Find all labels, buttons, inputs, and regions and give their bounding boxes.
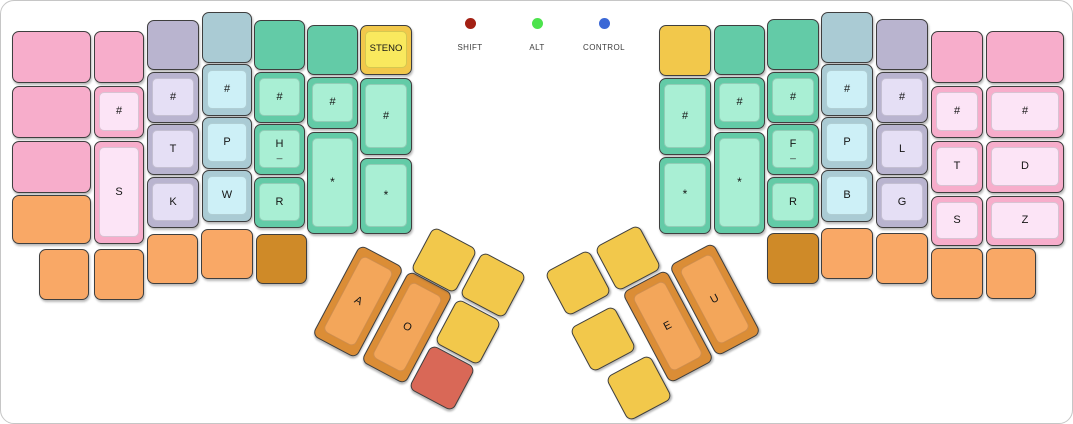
key-label: R <box>789 196 797 208</box>
key-blank-lavender[interactable] <box>876 19 928 70</box>
key-hash[interactable]: # <box>202 64 252 116</box>
key-blank-pink[interactable] <box>931 31 983 83</box>
alt-indicator-label: ALT <box>529 43 544 52</box>
key-blank-pink[interactable] <box>12 141 91 193</box>
key-blank-green[interactable] <box>714 25 765 75</box>
key-sublabel: _ <box>790 150 796 160</box>
key-label: # <box>116 105 122 117</box>
key-blank-pink[interactable] <box>986 31 1064 83</box>
key-hash[interactable]: # <box>94 86 144 138</box>
key-star[interactable]: * <box>659 157 711 234</box>
key-hash[interactable]: # <box>821 64 873 116</box>
key-w[interactable]: W <box>202 170 252 222</box>
key-p[interactable]: P <box>821 117 873 169</box>
indicator-control: CONTROL <box>564 18 644 52</box>
key-star[interactable]: * <box>307 132 358 234</box>
keymap-board: #S#TK#PW#H_R#*STENO#*AOEU#*#*#F_R#PB#LG#… <box>0 0 1073 424</box>
key-blank-darkorange[interactable] <box>256 234 307 284</box>
key-blank-pink[interactable] <box>12 31 91 83</box>
key-blank-blue[interactable] <box>821 12 873 63</box>
key-r[interactable]: R <box>767 177 819 228</box>
key-hash[interactable]: # <box>360 78 412 155</box>
key-star[interactable]: * <box>714 132 765 234</box>
key-hash[interactable]: # <box>714 77 765 129</box>
key-label: # <box>276 91 282 103</box>
key-blank-orange[interactable] <box>201 229 253 279</box>
key-blank-orange[interactable] <box>94 249 144 300</box>
key-label: R <box>276 196 284 208</box>
key-blank-green[interactable] <box>307 25 358 75</box>
key-label: * <box>683 188 688 201</box>
key-t[interactable]: T <box>147 124 199 175</box>
key-label: K <box>169 196 176 208</box>
key-d[interactable]: D <box>986 141 1064 193</box>
key-t[interactable]: T <box>931 141 983 193</box>
key-label: # <box>224 83 230 95</box>
key-label: G <box>898 196 907 208</box>
key-label: W <box>222 189 232 201</box>
key-label: E <box>662 319 674 333</box>
key-blank-orange[interactable] <box>39 249 89 300</box>
key-hash[interactable]: # <box>147 72 199 123</box>
key-r[interactable]: R <box>254 177 305 228</box>
key-sublabel: _ <box>277 150 283 160</box>
key-label: D <box>1021 160 1029 172</box>
key-label: # <box>899 91 905 103</box>
key-blank-green[interactable] <box>254 20 305 70</box>
key-steno[interactable]: STENO <box>360 25 412 75</box>
key-label: P <box>843 136 850 148</box>
key-hash[interactable]: # <box>876 72 928 123</box>
key-s[interactable]: S <box>931 196 983 246</box>
key-label: # <box>736 96 742 108</box>
key-h[interactable]: H_ <box>254 124 305 175</box>
key-label: * <box>330 176 335 189</box>
key-f[interactable]: F_ <box>767 124 819 175</box>
key-label: # <box>383 110 389 122</box>
key-label: U <box>708 292 721 306</box>
key-label: S <box>953 214 960 226</box>
key-label: # <box>682 110 688 122</box>
control-indicator-label: CONTROL <box>583 43 625 52</box>
key-star[interactable]: * <box>360 158 412 234</box>
key-label: * <box>384 189 389 202</box>
key-label: O <box>401 320 414 335</box>
key-b[interactable]: B <box>821 170 873 222</box>
key-blank-orange[interactable] <box>821 228 873 279</box>
alt-indicator-dot <box>532 18 543 29</box>
key-p[interactable]: P <box>202 117 252 169</box>
key-blank-pink[interactable] <box>12 86 91 138</box>
key-label: T <box>954 160 961 172</box>
key-label: # <box>844 83 850 95</box>
shift-indicator-dot <box>465 18 476 29</box>
key-blank-lavender[interactable] <box>147 20 199 70</box>
key-s[interactable]: S <box>94 141 144 244</box>
key-label: # <box>790 91 796 103</box>
key-z[interactable]: Z <box>986 196 1064 246</box>
key-label: S <box>115 186 122 198</box>
key-label: B <box>843 189 850 201</box>
key-label: # <box>170 91 176 103</box>
key-label: T <box>170 143 177 155</box>
key-l[interactable]: L <box>876 124 928 175</box>
key-label: STENO <box>370 44 403 54</box>
key-label: # <box>329 96 335 108</box>
key-label: A <box>352 294 364 308</box>
key-blank-orange[interactable] <box>147 234 198 284</box>
key-blank-blue[interactable] <box>202 12 252 63</box>
control-indicator-dot <box>599 18 610 29</box>
key-blank-pink[interactable] <box>94 31 144 83</box>
key-hash[interactable]: # <box>767 72 819 123</box>
key-label: L <box>899 143 905 155</box>
key-blank-orange[interactable] <box>986 248 1036 299</box>
key-label: * <box>737 176 742 189</box>
key-blank-yellow[interactable] <box>659 25 711 76</box>
key-hash[interactable]: # <box>307 77 358 129</box>
key-blank-orange[interactable] <box>931 248 983 299</box>
key-hash[interactable]: # <box>931 86 983 138</box>
key-blank-orange[interactable] <box>876 233 928 284</box>
key-blank-yellow[interactable] <box>569 305 637 373</box>
key-k[interactable]: K <box>147 177 199 228</box>
key-hash[interactable]: # <box>986 86 1064 138</box>
shift-indicator-label: SHIFT <box>457 43 482 52</box>
key-label: # <box>1022 105 1028 117</box>
key-blank-darkorange[interactable] <box>767 233 819 284</box>
key-label: P <box>223 136 230 148</box>
key-label: Z <box>1022 214 1029 226</box>
key-blank-orange[interactable] <box>12 195 91 244</box>
key-hash[interactable]: # <box>659 78 711 155</box>
key-hash[interactable]: # <box>254 72 305 123</box>
key-blank-green[interactable] <box>767 19 819 70</box>
key-g[interactable]: G <box>876 177 928 228</box>
key-label: # <box>954 105 960 117</box>
